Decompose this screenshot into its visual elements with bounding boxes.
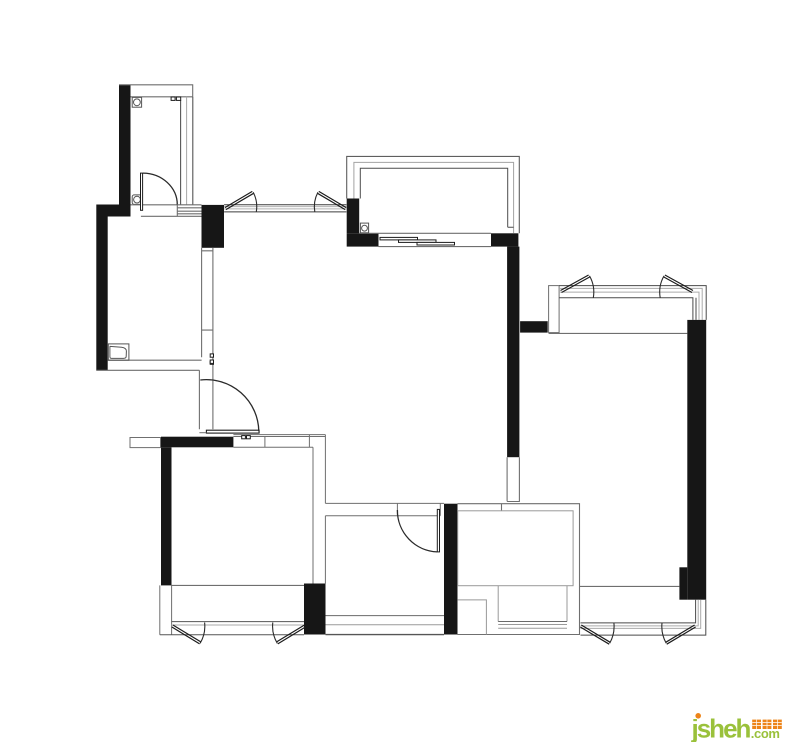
svg-text:.com: .com	[751, 726, 780, 741]
